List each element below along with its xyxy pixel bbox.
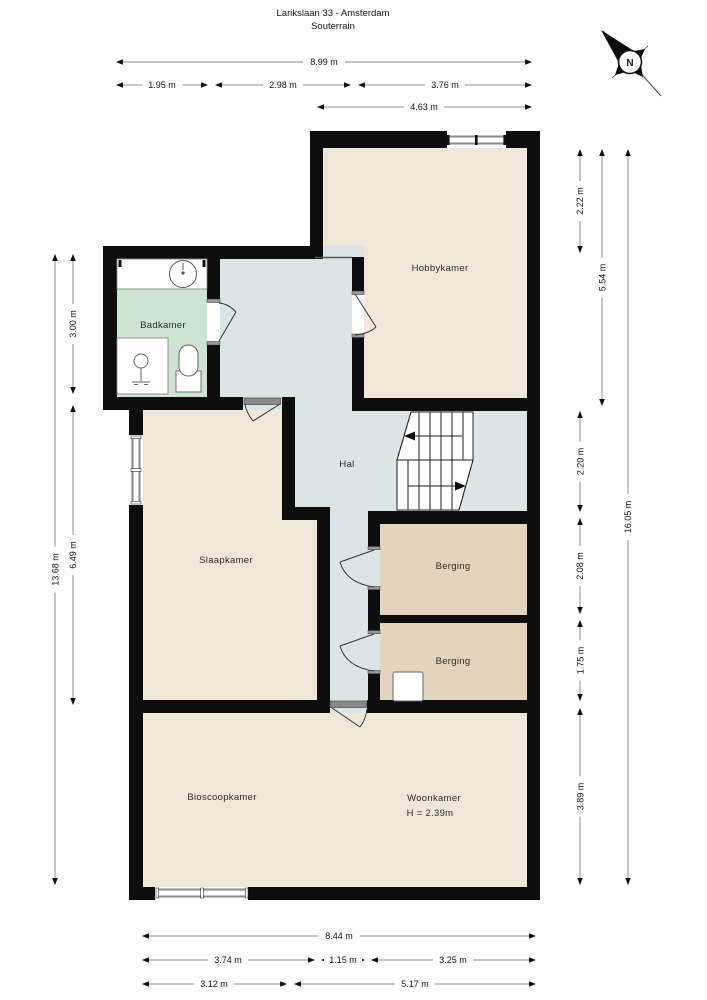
sink-icon [170, 261, 197, 288]
dim-top-badkamer: 1.95 m [148, 80, 176, 90]
dim-left-total: 13.68 m [51, 553, 61, 586]
dim-bottom-left2: 3.12 m [200, 979, 228, 989]
dim-top-right-block: 4.63 m [410, 102, 438, 112]
dim-left-slaapkamer: 6.49 m [68, 541, 78, 569]
dim-left-badkamer: 3.00 m [68, 310, 78, 338]
dim-bottom-right2: 5.17 m [401, 979, 429, 989]
window-hobbykamer [447, 131, 506, 148]
room-slaapkamer-lower [129, 507, 330, 713]
dim-bottom-middle: 1.15 m [329, 955, 357, 965]
label-woonkamer: Woonkamer [407, 793, 461, 804]
floorplan-page: Larikslaan 33 - Amsterdam Souterrain N [0, 0, 707, 1000]
compass-rose-icon: N [601, 30, 661, 96]
compass-north-label: N [626, 58, 633, 69]
shower-icon [117, 338, 168, 394]
room-slaapkamer-upper [129, 397, 295, 520]
room-hal-strip [207, 246, 364, 416]
toilet-icon [176, 345, 201, 392]
dim-right-woonkamer: 3.89 m [576, 783, 586, 811]
boiler [393, 672, 423, 701]
dim-top-hobbykamer: 3.76 m [431, 80, 459, 90]
dim-bottom-right: 3.25 m [439, 955, 467, 965]
dim-right-total: 16.05 m [623, 501, 633, 534]
label-berging-2: Berging [436, 656, 471, 667]
label-bioscoopkamer: Bioscoopkamer [187, 792, 256, 803]
dim-right-hobbykamer: 5.54 m [598, 264, 608, 292]
plan-subtitle: Souterrain [311, 21, 355, 32]
dim-right-hal: 2.20 m [576, 448, 586, 476]
dim-bottom-total: 8.44 m [325, 931, 353, 941]
plan-title: Larikslaan 33 - Amsterdam [277, 8, 390, 19]
label-badkamer: Badkamer [140, 320, 186, 331]
dim-top-hal: 2.98 m [269, 80, 297, 90]
label-hal: Hal [339, 459, 354, 470]
dim-right-upper: 2.22 m [575, 187, 585, 215]
window-bioscoopkamer [155, 887, 248, 900]
label-woonkamer-height: H = 2.39m [407, 808, 454, 819]
dim-top-total: 8.99 m [310, 57, 338, 67]
floorplan-canvas: Larikslaan 33 - Amsterdam Souterrain N [0, 0, 707, 1000]
window-slaapkamer [129, 435, 143, 505]
dim-bottom-left: 3.74 m [214, 955, 242, 965]
label-hobbykamer: Hobbykamer [412, 263, 469, 274]
dim-right-berging2: 1.75 m [576, 647, 586, 675]
label-slaapkamer: Slaapkamer [199, 555, 253, 566]
label-berging-1: Berging [436, 561, 471, 572]
dim-right-berging1: 2.08 m [575, 552, 585, 580]
stairs [397, 412, 473, 510]
